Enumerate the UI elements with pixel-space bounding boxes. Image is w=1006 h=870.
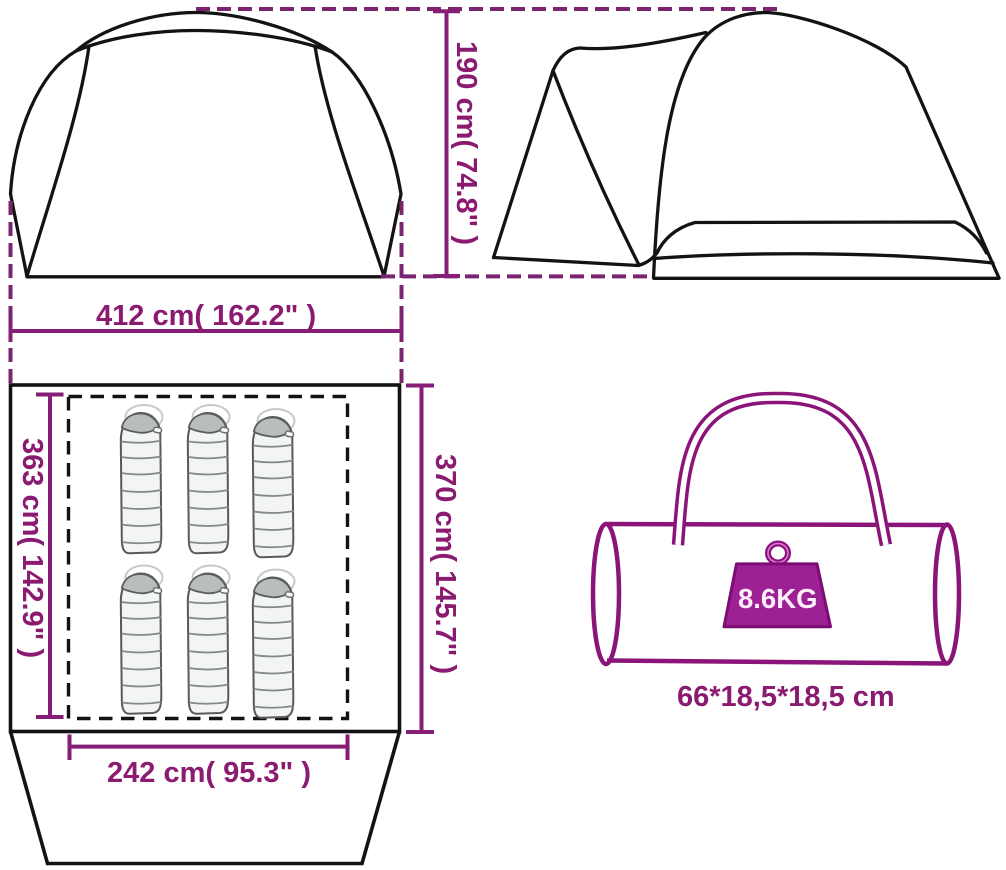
- svg-text:190 cm( 74.8" ): 190 cm( 74.8" ): [450, 41, 482, 245]
- svg-text:412 cm( 162.2" ): 412 cm( 162.2" ): [96, 300, 316, 332]
- svg-text:363 cm( 142.9" ): 363 cm( 142.9" ): [16, 438, 48, 658]
- svg-text:8.6KG: 8.6KG: [738, 583, 817, 614]
- svg-text:370 cm( 145.7" ): 370 cm( 145.7" ): [429, 454, 461, 674]
- svg-text:242 cm( 95.3" ): 242 cm( 95.3" ): [107, 757, 311, 789]
- svg-text:66*18,5*18,5 cm: 66*18,5*18,5 cm: [677, 681, 895, 713]
